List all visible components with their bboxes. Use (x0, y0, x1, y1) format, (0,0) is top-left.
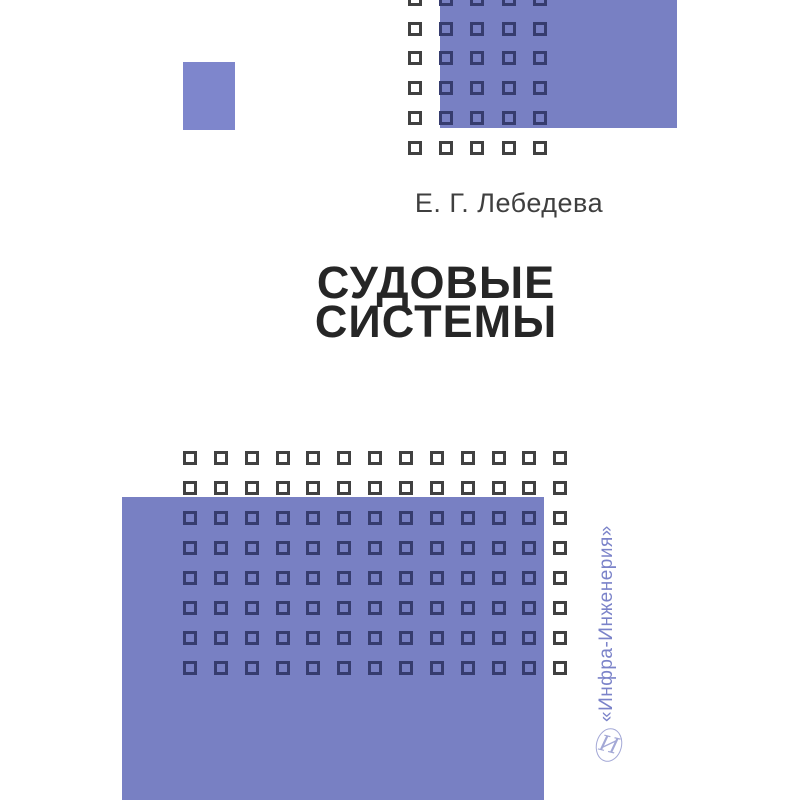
grid-square (522, 571, 536, 585)
grid-square (368, 451, 382, 465)
grid-square (533, 22, 547, 36)
grid-square (430, 511, 444, 525)
grid-square (183, 541, 197, 555)
grid-square (492, 571, 506, 585)
grid-square (553, 481, 567, 495)
grid-square (502, 111, 516, 125)
grid-square (408, 141, 422, 155)
grid-square (214, 511, 228, 525)
grid-square (470, 22, 484, 36)
grid-square (470, 141, 484, 155)
grid-square (214, 541, 228, 555)
publisher-logo-icon: И (594, 727, 624, 763)
grid-square (533, 141, 547, 155)
grid-square (439, 0, 453, 6)
grid-square (522, 541, 536, 555)
grid-square (368, 481, 382, 495)
grid-square (368, 571, 382, 585)
grid-square (276, 541, 290, 555)
author-name: Е. Г. Лебедева (415, 190, 603, 217)
grid-square (492, 451, 506, 465)
grid-square (245, 451, 259, 465)
grid-square (337, 451, 351, 465)
grid-square (430, 631, 444, 645)
grid-square (245, 481, 259, 495)
grid-square (492, 481, 506, 495)
grid-square (470, 111, 484, 125)
grid-square (461, 511, 475, 525)
grid-square (533, 51, 547, 65)
grid-square (502, 141, 516, 155)
grid-square (183, 451, 197, 465)
grid-square (470, 0, 484, 6)
grid-square (461, 661, 475, 675)
grid-square (368, 601, 382, 615)
grid-square (183, 631, 197, 645)
grid-square (430, 481, 444, 495)
grid-square (306, 601, 320, 615)
grid-square (439, 22, 453, 36)
grid-square (306, 571, 320, 585)
grid-square (368, 511, 382, 525)
publisher-name-vertical: «Инфра-Инженерия» (596, 550, 619, 722)
grid-square (245, 661, 259, 675)
grid-square (502, 81, 516, 95)
grid-square (533, 81, 547, 95)
grid-square (337, 481, 351, 495)
grid-square (399, 511, 413, 525)
grid-square (439, 51, 453, 65)
grid-square (245, 541, 259, 555)
grid-square (430, 541, 444, 555)
grid-square (430, 451, 444, 465)
grid-square (399, 451, 413, 465)
grid-square (492, 661, 506, 675)
small-accent-rect (183, 62, 235, 130)
grid-square (245, 601, 259, 615)
grid-square (522, 511, 536, 525)
grid-square (522, 481, 536, 495)
grid-square (522, 451, 536, 465)
grid-square (502, 0, 516, 6)
grid-square (337, 541, 351, 555)
grid-square (461, 601, 475, 615)
grid-square (183, 511, 197, 525)
book-cover: Е. Г. Лебедева СУДОВЫЕ СИСТЕМЫ «Инфра-Ин… (0, 0, 800, 800)
grid-square (276, 571, 290, 585)
grid-square (533, 111, 547, 125)
grid-square (306, 631, 320, 645)
publisher-logo-glyph: И (592, 725, 625, 764)
grid-square (337, 631, 351, 645)
grid-square (553, 601, 567, 615)
grid-square (368, 541, 382, 555)
grid-square (553, 541, 567, 555)
grid-square (492, 511, 506, 525)
grid-square (439, 141, 453, 155)
grid-square (183, 571, 197, 585)
grid-square (461, 631, 475, 645)
grid-square (306, 541, 320, 555)
grid-square (553, 451, 567, 465)
grid-square (276, 631, 290, 645)
grid-square (439, 111, 453, 125)
grid-square (306, 481, 320, 495)
grid-square (276, 661, 290, 675)
grid-square (522, 631, 536, 645)
grid-square (214, 631, 228, 645)
grid-square (553, 631, 567, 645)
grid-square (183, 661, 197, 675)
grid-square (522, 601, 536, 615)
grid-square (337, 571, 351, 585)
grid-square (276, 601, 290, 615)
grid-square (214, 601, 228, 615)
grid-square (399, 631, 413, 645)
grid-square (408, 0, 422, 6)
grid-square (337, 661, 351, 675)
grid-square (214, 661, 228, 675)
grid-square (430, 571, 444, 585)
grid-square (461, 481, 475, 495)
grid-square (553, 511, 567, 525)
grid-square (430, 661, 444, 675)
grid-square (470, 51, 484, 65)
grid-square (408, 81, 422, 95)
grid-square (214, 451, 228, 465)
grid-square (492, 631, 506, 645)
grid-square (461, 451, 475, 465)
grid-square (533, 0, 547, 6)
grid-square (399, 541, 413, 555)
grid-square (522, 661, 536, 675)
grid-square (408, 22, 422, 36)
grid-square (470, 81, 484, 95)
title-line-2: СИСТЕМЫ (315, 302, 557, 341)
grid-square (183, 601, 197, 615)
grid-square (553, 571, 567, 585)
grid-square (492, 541, 506, 555)
book-title: СУДОВЫЕ СИСТЕМЫ (315, 263, 557, 341)
grid-square (408, 111, 422, 125)
grid-square (306, 511, 320, 525)
grid-square (337, 601, 351, 615)
grid-square (245, 571, 259, 585)
grid-square (399, 481, 413, 495)
grid-square (399, 571, 413, 585)
grid-square (492, 601, 506, 615)
grid-square (276, 511, 290, 525)
grid-square (214, 571, 228, 585)
grid-square (276, 451, 290, 465)
grid-square (408, 51, 422, 65)
grid-square (399, 661, 413, 675)
grid-square (502, 51, 516, 65)
grid-square (368, 661, 382, 675)
grid-square (183, 481, 197, 495)
grid-square (276, 481, 290, 495)
grid-square (214, 481, 228, 495)
grid-square (368, 631, 382, 645)
grid-square (245, 511, 259, 525)
grid-square (337, 511, 351, 525)
grid-square (502, 22, 516, 36)
grid-square (461, 571, 475, 585)
grid-square (439, 81, 453, 95)
grid-square (306, 451, 320, 465)
grid-square (306, 661, 320, 675)
grid-square (399, 601, 413, 615)
grid-square (461, 541, 475, 555)
grid-square (553, 661, 567, 675)
grid-square (430, 601, 444, 615)
grid-square (245, 631, 259, 645)
